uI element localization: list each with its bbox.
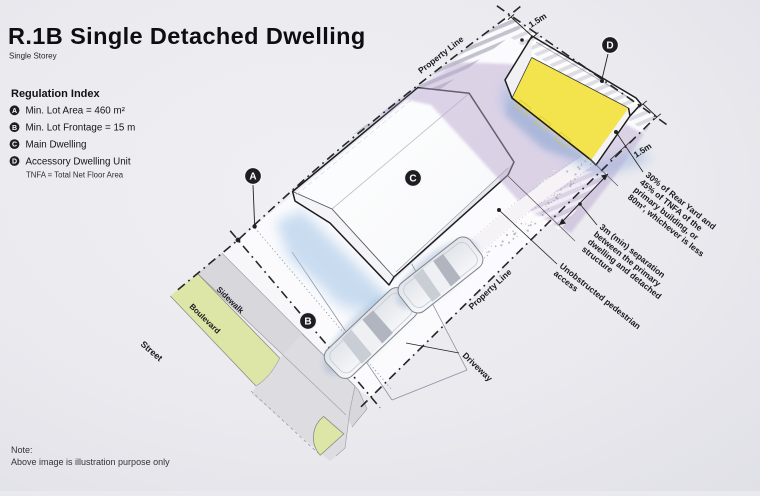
svg-text:B: B [12, 125, 17, 132]
svg-text:D: D [606, 41, 613, 52]
svg-text:C: C [409, 174, 416, 185]
svg-text:Above image is illustration pu: Above image is illustration purpose only [11, 457, 170, 467]
svg-text:C: C [12, 142, 17, 149]
svg-text:Min. Lot Frontage = 15 m: Min. Lot Frontage = 15 m [26, 123, 136, 134]
svg-text:A: A [249, 172, 256, 183]
svg-text:Accessory Dwelling Unit: Accessory Dwelling Unit [26, 156, 131, 167]
svg-text:Min. Lot Area = 460 m²: Min. Lot Area = 460 m² [26, 106, 126, 117]
svg-text:R.1B Single Detached Dwelling: R.1B Single Detached Dwelling [8, 23, 366, 49]
svg-text:Single Storey: Single Storey [9, 52, 57, 61]
svg-text:D: D [12, 159, 17, 166]
svg-text:Regulation Index: Regulation Index [11, 88, 101, 100]
svg-text:A: A [12, 108, 17, 115]
svg-text:B: B [304, 317, 311, 328]
svg-text:Main Dwelling: Main Dwelling [26, 140, 87, 151]
svg-text:Note:: Note: [11, 445, 33, 455]
svg-text:TNFA = Total Net Floor Area: TNFA = Total Net Floor Area [26, 171, 124, 180]
